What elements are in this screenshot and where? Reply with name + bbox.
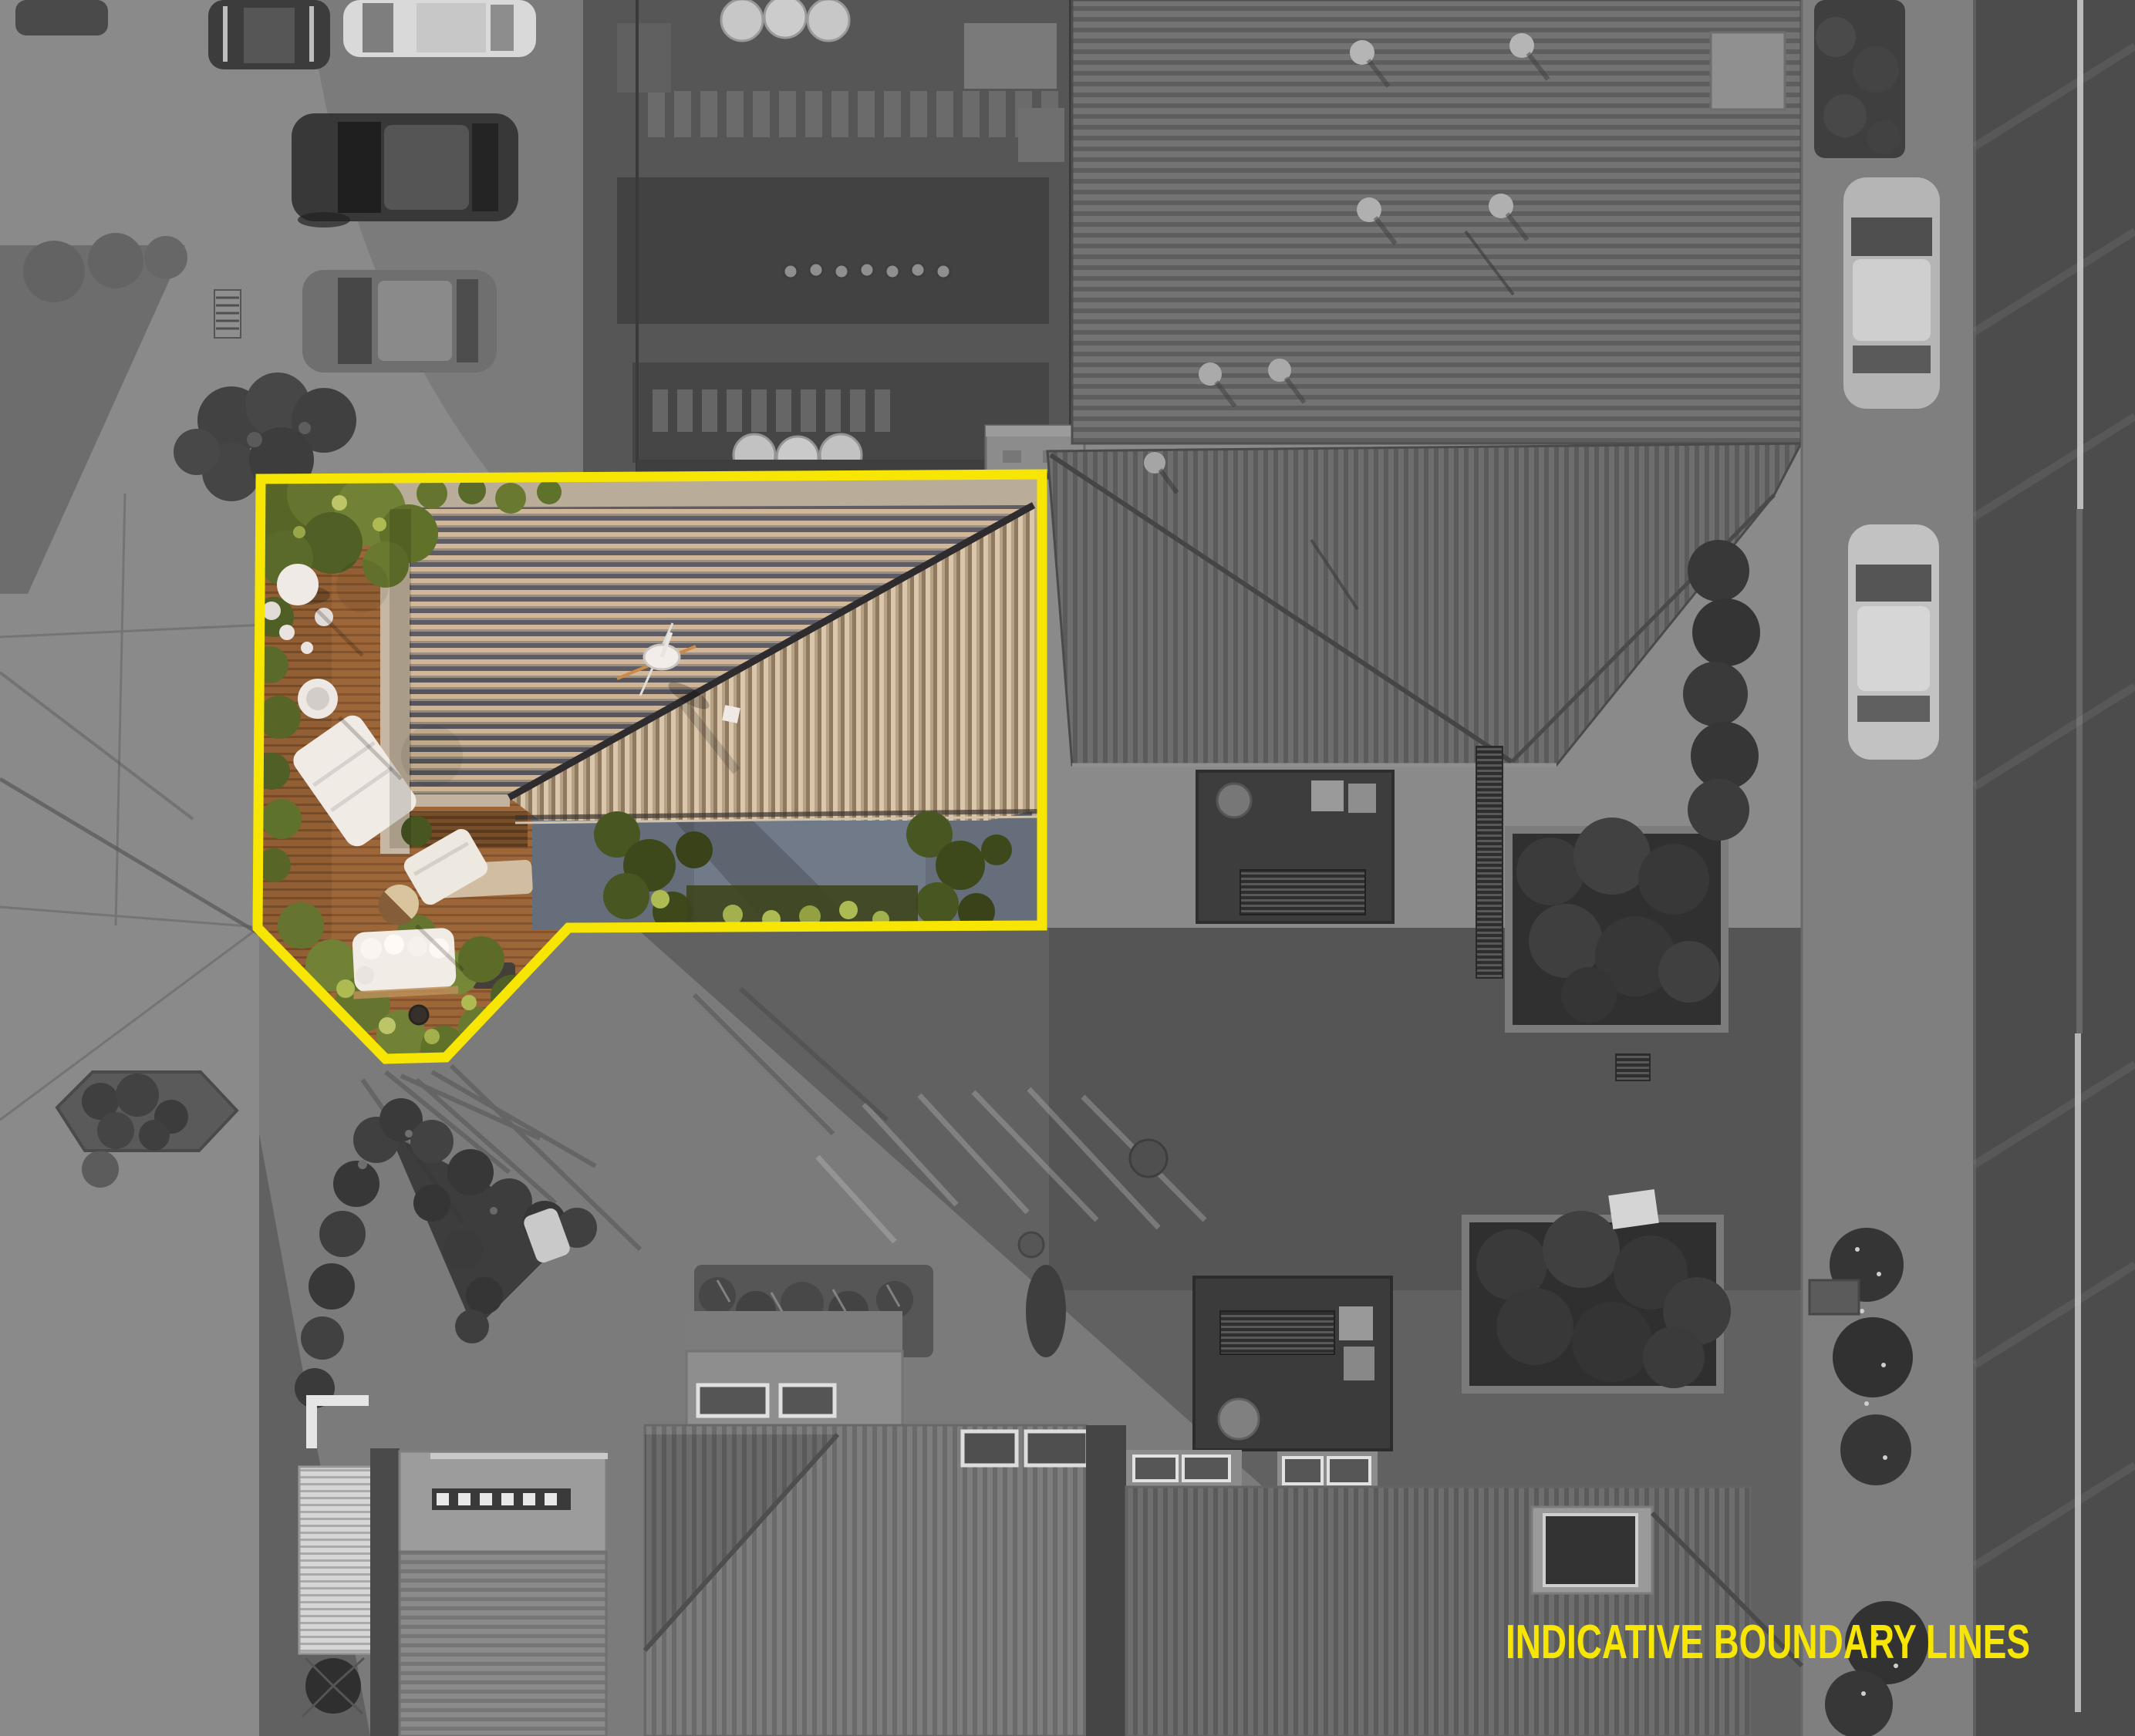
white-sign bbox=[1608, 1189, 1659, 1229]
car-suv-dark bbox=[292, 113, 518, 228]
roof-structure bbox=[1711, 32, 1785, 110]
clerestory-window bbox=[1328, 1458, 1370, 1484]
car-suv-roofrails bbox=[208, 0, 330, 69]
street-hedge-top bbox=[1814, 0, 1905, 158]
service-yard-lower bbox=[1194, 1277, 1391, 1450]
clerestory-window bbox=[1283, 1458, 1322, 1484]
tall-tree bbox=[1026, 1265, 1066, 1357]
slat-screen bbox=[1476, 747, 1503, 978]
ac-grille bbox=[1240, 870, 1365, 915]
boundary-label: INDICATIVE BOUNDARY LINES bbox=[1506, 1616, 2030, 1669]
clerestory-window bbox=[1026, 1431, 1088, 1465]
round-tank bbox=[1217, 784, 1251, 817]
bin bbox=[1339, 1306, 1373, 1340]
water-heater bbox=[1219, 1399, 1259, 1439]
shadow-blob bbox=[144, 236, 187, 279]
clerestory-window bbox=[963, 1431, 1017, 1465]
aerial-photo: INDICATIVE BOUNDARY LINES bbox=[0, 0, 2135, 1736]
clerestory-window bbox=[1183, 1456, 1229, 1481]
car-dark-edge bbox=[15, 0, 108, 35]
car-white bbox=[343, 0, 536, 57]
road bbox=[1975, 0, 2135, 1736]
equipment-box bbox=[617, 23, 671, 93]
louvre-pergola bbox=[299, 1467, 379, 1653]
dark-skylight bbox=[1544, 1515, 1637, 1586]
car-grey bbox=[302, 270, 497, 372]
hedge-garden-lower bbox=[1465, 1189, 1731, 1390]
hedge-garden-upper bbox=[1509, 817, 1725, 1029]
courtyard-gardens-top bbox=[583, 0, 1084, 480]
clerestory-window bbox=[698, 1385, 767, 1416]
clerestory-window bbox=[1134, 1456, 1177, 1481]
plaza-vent-grate bbox=[214, 290, 241, 338]
building-bottom-right bbox=[1126, 1450, 1802, 1736]
bin bbox=[1344, 1347, 1374, 1380]
bin bbox=[1348, 784, 1376, 813]
corrugated-roof bbox=[1126, 1487, 1751, 1736]
bin bbox=[1311, 780, 1344, 811]
clerestory-window bbox=[781, 1385, 835, 1416]
footpath-and-road-right bbox=[1802, 0, 2135, 1736]
roof-upper-plane bbox=[1072, 0, 1801, 443]
ac-grille bbox=[1220, 1311, 1334, 1354]
service-yard-upper bbox=[1197, 771, 1393, 922]
shadow-blob bbox=[88, 233, 143, 288]
equipment-box bbox=[964, 23, 1057, 89]
street-parked-car bbox=[1843, 177, 1940, 409]
shadow-blob bbox=[23, 241, 85, 302]
street-parked-car bbox=[1848, 524, 1939, 760]
corrugated-roof bbox=[400, 1552, 606, 1736]
equipment-box bbox=[1018, 108, 1064, 162]
